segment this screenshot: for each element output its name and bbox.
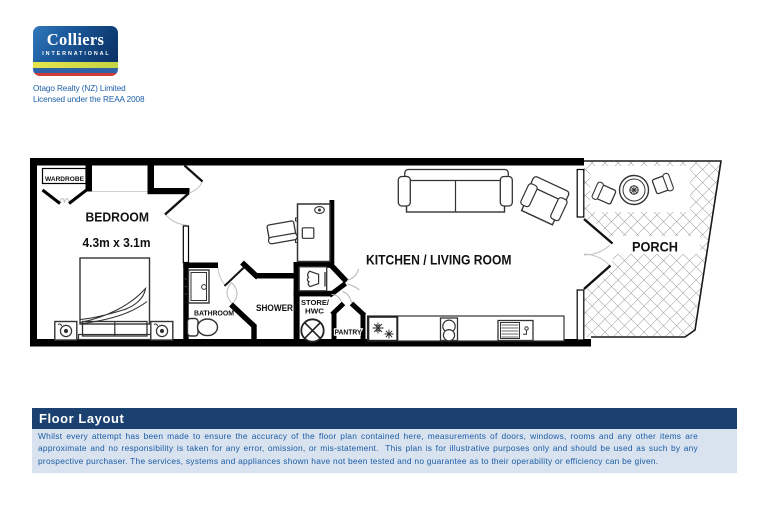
svg-text:PANTRY: PANTRY (335, 328, 362, 337)
svg-text:HWC: HWC (305, 307, 325, 316)
svg-text:4.3m x 3.1m: 4.3m x 3.1m (83, 236, 151, 250)
svg-text:BEDROOM: BEDROOM (86, 210, 150, 224)
svg-text:BATHROOM: BATHROOM (194, 309, 234, 318)
svg-text:SHOWER: SHOWER (256, 303, 293, 314)
svg-text:KITCHEN / LIVING ROOM: KITCHEN / LIVING ROOM (366, 253, 512, 268)
svg-text:WARDROBE: WARDROBE (45, 176, 85, 183)
svg-text:PORCH: PORCH (632, 240, 678, 255)
